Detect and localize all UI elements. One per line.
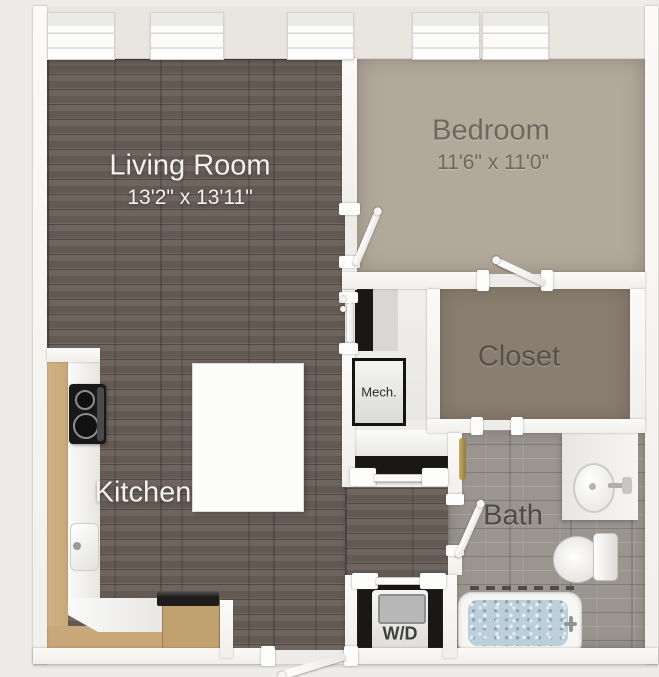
door-frame-stub — [344, 646, 358, 666]
shower-curtain-track — [470, 586, 574, 590]
bath-faucet-handle — [622, 477, 632, 494]
wall-bedroom-closet — [342, 272, 485, 289]
window — [412, 12, 480, 60]
pantry-door — [347, 303, 353, 343]
window — [482, 12, 549, 60]
closet-label: Closet — [478, 341, 560, 374]
kitchen-appliance-bar — [157, 591, 219, 606]
exterior-wall-left — [33, 6, 47, 664]
stove-burner — [75, 390, 95, 410]
exterior-wall-right — [645, 6, 658, 664]
door-frame-stub — [422, 468, 448, 486]
living-room-label: Living Room — [109, 150, 270, 183]
door-knob — [340, 306, 346, 312]
kitchen-label: Kitchen — [95, 477, 192, 510]
linen-closet-doors — [374, 474, 424, 482]
washer-dryer: W/D — [372, 590, 428, 652]
linen-closet-shelf — [352, 430, 450, 456]
kitchen-faucet — [73, 542, 81, 550]
bathtub-water — [468, 600, 568, 646]
mechanical-label: Mech. — [361, 385, 396, 400]
wall-kitchen-nook — [220, 600, 233, 658]
wall-closet-bath — [515, 419, 645, 433]
sink-drain — [589, 483, 596, 490]
door-frame-stub — [511, 417, 523, 435]
bedroom-dimensions: 11'6" x 11'0" — [437, 151, 549, 175]
window — [150, 12, 224, 60]
wall-living-bedroom — [342, 58, 357, 213]
kitchen-island — [192, 363, 304, 512]
bedroom-label: Bedroom — [432, 115, 550, 148]
bathtub — [458, 592, 582, 656]
door-frame-stub — [350, 468, 376, 486]
door-frame-stub — [471, 417, 483, 435]
door-frame-stub — [420, 573, 446, 589]
washer-dryer-lid — [378, 594, 426, 624]
towel-bar — [459, 438, 466, 480]
stove-burner — [73, 413, 99, 439]
wall-bedroom-closet — [545, 272, 645, 289]
window — [287, 12, 354, 60]
door-frame-stub — [339, 343, 358, 354]
door-knob — [277, 670, 287, 677]
pantry-closet-floor — [373, 289, 398, 351]
tub-faucet — [564, 622, 577, 626]
stove-handle — [97, 387, 104, 441]
door-frame-stub — [352, 573, 378, 589]
wall-closet-right — [630, 289, 645, 420]
kitchen-cabinets-left — [47, 362, 68, 650]
bath-sink — [573, 463, 615, 513]
window — [47, 12, 115, 60]
bath-label: Bath — [483, 500, 543, 533]
wall-kitchen-top — [47, 348, 100, 362]
door-knob — [340, 296, 346, 302]
toilet-tank — [593, 533, 618, 581]
door-frame-stub — [339, 203, 360, 215]
stove — [69, 384, 106, 444]
door-frame-stub — [446, 494, 464, 505]
exterior-wall-bottom — [33, 648, 273, 664]
kitchen-sink — [70, 523, 99, 571]
exterior-wall-bottom — [348, 648, 658, 664]
mechanical-closet: Mech. — [352, 358, 406, 426]
wall-closet-bath — [427, 419, 475, 433]
floor-plan: W/D Mech. — [0, 0, 659, 677]
door-frame-stub — [477, 270, 489, 291]
door-frame-stub — [261, 646, 275, 666]
wall-hall-closet — [427, 289, 440, 420]
washer-dryer-label: W/D — [383, 624, 418, 645]
living-room-dimensions: 13'2" x 13'11" — [127, 186, 252, 210]
laundry-doors — [376, 577, 422, 585]
kitchen-butcher-block — [162, 605, 220, 653]
